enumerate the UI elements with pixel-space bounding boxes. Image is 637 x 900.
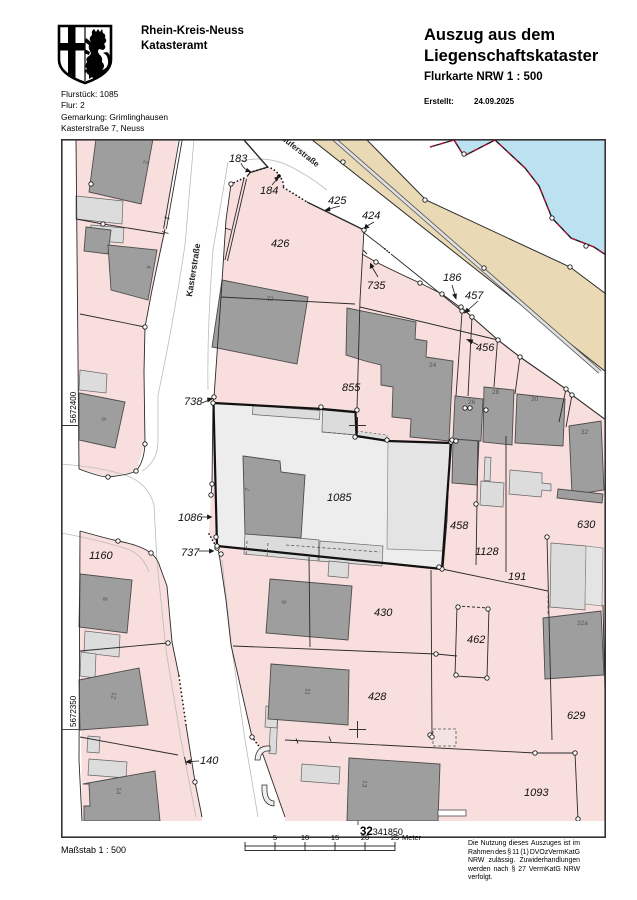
svg-text:32a: 32a xyxy=(577,620,588,627)
svg-text:13: 13 xyxy=(360,780,368,788)
svg-text:186: 186 xyxy=(443,272,462,284)
svg-text:20: 20 xyxy=(361,833,369,842)
svg-text:458: 458 xyxy=(450,520,469,532)
svg-text:1093: 1093 xyxy=(524,787,549,799)
svg-text:25: 25 xyxy=(391,833,399,842)
svg-text:5: 5 xyxy=(273,833,277,842)
svg-text:30: 30 xyxy=(531,396,539,403)
svg-text:191: 191 xyxy=(508,571,526,583)
svg-text:735: 735 xyxy=(367,280,386,292)
svg-text:26: 26 xyxy=(468,399,476,406)
svg-text:630: 630 xyxy=(577,519,596,531)
svg-text:24: 24 xyxy=(429,362,437,369)
svg-text:428: 428 xyxy=(368,691,387,703)
svg-text:425: 425 xyxy=(328,195,347,207)
svg-text:5672350: 5672350 xyxy=(69,695,78,727)
svg-text:629: 629 xyxy=(567,710,585,722)
svg-text:424: 424 xyxy=(362,210,380,222)
svg-text:1086: 1086 xyxy=(178,512,203,524)
svg-text:184: 184 xyxy=(260,185,278,197)
svg-text:Meter: Meter xyxy=(402,833,422,842)
svg-text:456: 456 xyxy=(476,342,495,354)
svg-text:12: 12 xyxy=(109,692,117,700)
svg-text:32: 32 xyxy=(581,429,589,436)
svg-text:738: 738 xyxy=(184,396,203,408)
svg-text:457: 457 xyxy=(465,290,484,302)
svg-text:14: 14 xyxy=(114,787,122,795)
svg-text:15: 15 xyxy=(331,833,339,842)
svg-text:Kasterstraße: Kasterstraße xyxy=(184,243,202,298)
svg-text:737: 737 xyxy=(181,547,200,559)
svg-text:855: 855 xyxy=(342,382,361,394)
svg-text:183: 183 xyxy=(229,153,248,165)
svg-text:140: 140 xyxy=(200,755,219,767)
svg-text:1160: 1160 xyxy=(89,550,114,562)
svg-text:11: 11 xyxy=(303,688,311,696)
svg-text:430: 430 xyxy=(374,607,393,619)
svg-text:1128: 1128 xyxy=(475,546,500,558)
svg-text:1085: 1085 xyxy=(327,492,352,504)
svg-text:28: 28 xyxy=(492,389,500,396)
svg-text:5672400: 5672400 xyxy=(69,391,78,423)
svg-text:10: 10 xyxy=(301,833,309,842)
svg-text:462: 462 xyxy=(467,634,485,646)
svg-text:426: 426 xyxy=(271,238,290,250)
